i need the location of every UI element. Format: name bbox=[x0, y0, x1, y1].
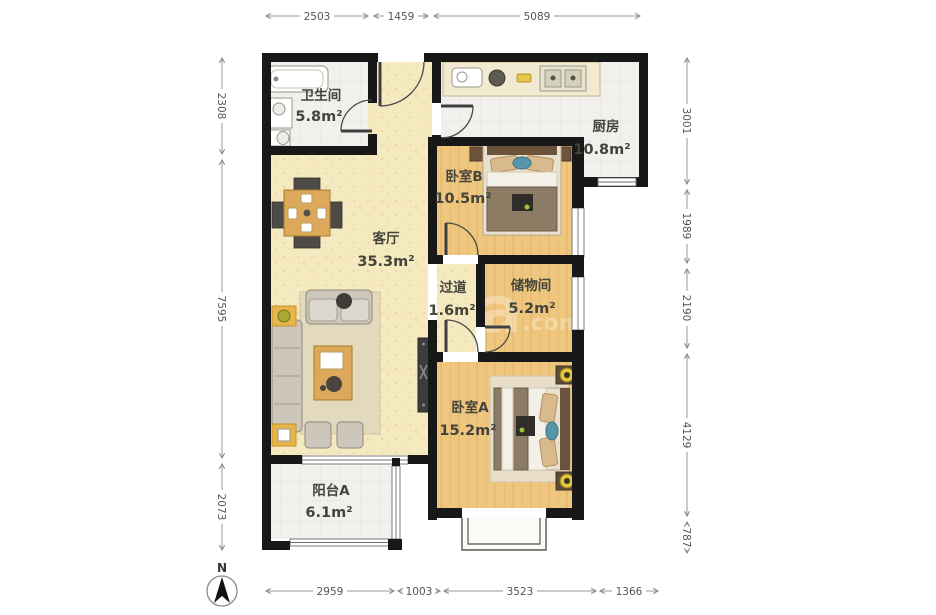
dim-right-1: 1989 bbox=[680, 190, 692, 263]
floor-plan-canvas: a .com bbox=[0, 0, 936, 615]
svg-text:2503: 2503 bbox=[304, 11, 331, 23]
entry-corridor-floor bbox=[377, 62, 432, 146]
ottoman-1 bbox=[305, 422, 331, 448]
dim-bottom-3: 1366 bbox=[600, 586, 658, 598]
sink-bowl-icon bbox=[273, 103, 285, 115]
laptop-b bbox=[512, 194, 533, 211]
svg-text:2073: 2073 bbox=[215, 494, 227, 521]
table-centerpiece bbox=[304, 210, 311, 217]
bathtub-drain-icon bbox=[274, 77, 279, 82]
window-balcony-right bbox=[392, 466, 400, 539]
dim-right-4: 787 bbox=[680, 522, 692, 553]
svg-text:4129: 4129 bbox=[680, 422, 692, 449]
dim-left-1: 7595 bbox=[215, 160, 227, 458]
kitchen-area: 10.8m² bbox=[573, 142, 630, 158]
hallway-area: 1.6m² bbox=[428, 303, 475, 319]
svg-text:3523: 3523 bbox=[507, 586, 534, 598]
kitchen-sink bbox=[489, 70, 505, 86]
dining-chair-top bbox=[294, 178, 320, 190]
plate-e bbox=[317, 208, 326, 219]
burner-dot-2 bbox=[571, 76, 576, 81]
plant-icon bbox=[278, 310, 290, 322]
dim-right-0: 3001 bbox=[680, 58, 692, 184]
bedroom-b-area: 10.5m² bbox=[434, 191, 491, 207]
dim-top-1: 1459 bbox=[374, 11, 428, 23]
balcony-label: 阳台A bbox=[312, 482, 350, 499]
storage-area: 5.2m² bbox=[508, 301, 555, 317]
dim-top-0: 2503 bbox=[266, 11, 368, 23]
kitchen-fixtures bbox=[443, 62, 600, 96]
sofa-group bbox=[272, 290, 380, 448]
dining-chair-right bbox=[330, 202, 342, 228]
bed-a-pillow-top bbox=[539, 393, 558, 423]
bathroom-label: 卫生间 bbox=[301, 87, 342, 104]
bed-b-headboard bbox=[487, 145, 557, 155]
svg-text:1989: 1989 bbox=[680, 213, 692, 240]
lamp-top-center bbox=[564, 372, 570, 378]
tv-wall-unit bbox=[418, 338, 429, 412]
tv-dot-bottom bbox=[422, 404, 425, 407]
svg-text:1459: 1459 bbox=[388, 11, 415, 23]
hallway-label: 过道 bbox=[440, 279, 467, 296]
loveseat-cushion-1 bbox=[309, 299, 337, 321]
compass-north-label: N bbox=[217, 561, 227, 575]
bed-b-sheet bbox=[487, 172, 557, 187]
svg-text:2190: 2190 bbox=[680, 295, 692, 322]
bed-b-round-pillow bbox=[513, 157, 531, 169]
tv-dot-top bbox=[422, 343, 425, 346]
bedroom-a-furniture bbox=[490, 366, 578, 490]
dining-chair-bottom bbox=[294, 236, 320, 248]
window-storage-right bbox=[572, 277, 584, 330]
dim-right-3: 4129 bbox=[680, 354, 692, 516]
kitchen-label: 厨房 bbox=[593, 118, 620, 135]
svg-text:2959: 2959 bbox=[317, 586, 344, 598]
burner-dot-1 bbox=[551, 76, 556, 81]
bed-a-headboard bbox=[560, 388, 570, 470]
floor-plan-page: a .com bbox=[0, 0, 936, 615]
plate-w bbox=[288, 208, 297, 219]
bay-window bbox=[462, 518, 546, 550]
balcony-area: 6.1m² bbox=[305, 505, 352, 521]
lamp-bottom-center bbox=[564, 478, 570, 484]
window-balcony-bottom bbox=[290, 539, 392, 546]
cup-icon bbox=[320, 385, 326, 391]
plate-n bbox=[301, 194, 312, 203]
box-icon bbox=[278, 429, 290, 441]
window-bedroom-b-right bbox=[572, 208, 584, 257]
ottoman-2 bbox=[337, 422, 363, 448]
teapot-icon bbox=[326, 376, 342, 392]
storage-label: 储物间 bbox=[510, 277, 552, 294]
tv-screen bbox=[418, 338, 429, 412]
bed-a-pillow-bottom bbox=[539, 437, 558, 467]
svg-text:7595: 7595 bbox=[215, 296, 227, 323]
bed-a-round-pillow bbox=[546, 422, 558, 440]
laptop-b-light bbox=[525, 205, 530, 210]
dim-top-2: 5089 bbox=[434, 11, 640, 23]
dim-left-2: 2073 bbox=[215, 464, 227, 550]
bathroom-area: 5.8m² bbox=[295, 109, 342, 125]
dim-right-2: 2190 bbox=[680, 269, 692, 348]
bed-a-duvet-fold bbox=[502, 388, 513, 470]
svg-text:1366: 1366 bbox=[616, 586, 643, 598]
compass: N bbox=[207, 561, 237, 606]
svg-text:2308: 2308 bbox=[215, 93, 227, 120]
bedroom-a-area: 15.2m² bbox=[439, 423, 496, 439]
balcony-floor bbox=[271, 464, 392, 539]
dim-left-0: 2308 bbox=[215, 58, 227, 154]
plate-s bbox=[301, 223, 312, 232]
living-room-area: 35.3m² bbox=[357, 254, 414, 270]
svg-text:5089: 5089 bbox=[524, 11, 551, 23]
coffee-tray bbox=[320, 352, 343, 369]
svg-text:1003: 1003 bbox=[406, 586, 433, 598]
bedroom-a-label: 卧室A bbox=[451, 399, 489, 416]
round-side-table bbox=[336, 293, 352, 309]
laptop-a-light bbox=[520, 428, 525, 433]
bedroom-b-furniture bbox=[470, 145, 571, 235]
soap-tray bbox=[517, 74, 531, 82]
dim-bottom-1: 1003 bbox=[398, 586, 440, 598]
living-room-label: 客厅 bbox=[372, 230, 400, 247]
dim-bottom-2: 3523 bbox=[444, 586, 596, 598]
dining-chair-left bbox=[272, 202, 284, 228]
svg-text:3001: 3001 bbox=[680, 108, 692, 135]
dim-bottom-0: 2959 bbox=[266, 586, 394, 598]
toilet-bowl-icon bbox=[277, 132, 289, 145]
laptop-a bbox=[516, 416, 535, 436]
bedroom-b-label: 卧室B bbox=[445, 168, 482, 185]
svg-text:787: 787 bbox=[680, 527, 692, 547]
